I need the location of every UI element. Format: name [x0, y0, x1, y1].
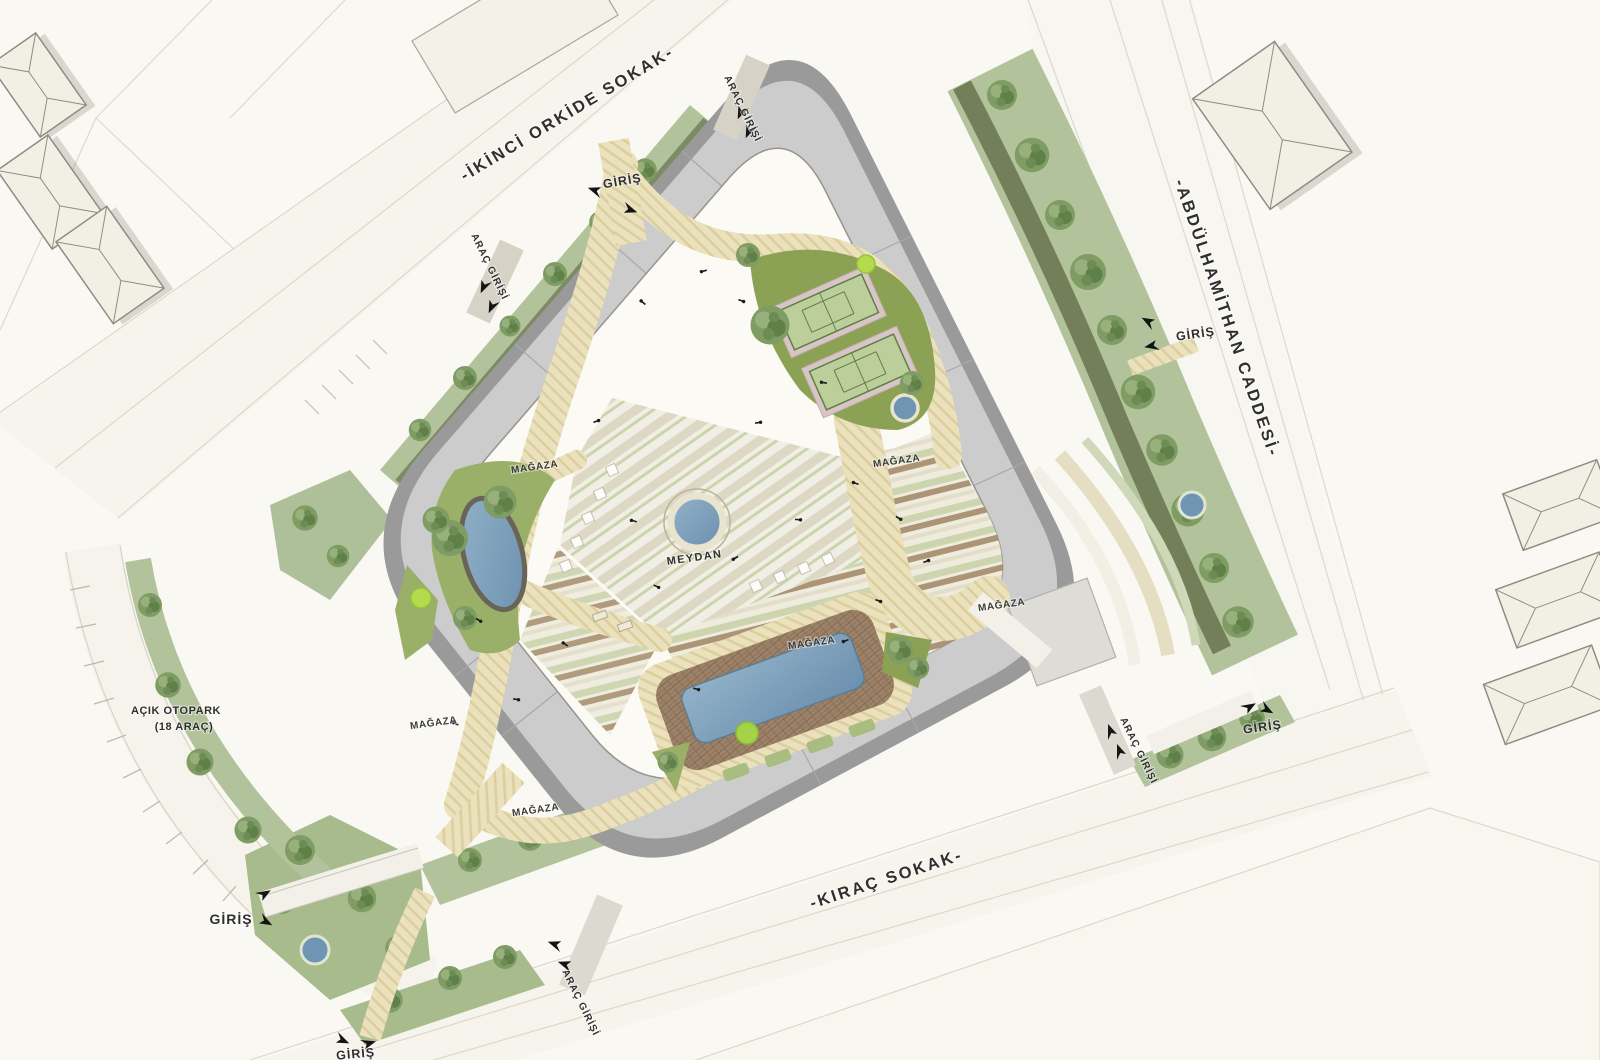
- round-pool: [892, 395, 918, 421]
- pond: [301, 936, 329, 964]
- entrance-label-bottom-left: GİRİŞ: [209, 911, 252, 927]
- pond: [1179, 492, 1205, 518]
- lime-lawn-circle: [411, 588, 431, 608]
- central-pool: [671, 496, 723, 548]
- open-parking-label-line1: AÇIK OTOPARK: [131, 705, 221, 717]
- lime-lawn-circle: [736, 722, 758, 744]
- site-plan-canvas: -İKİNCİ ORKİDE SOKAK- -ABDÜLHAMİTHAN CAD…: [0, 0, 1600, 1060]
- central-pool-group: [664, 489, 730, 555]
- site-plan: -İKİNCİ ORKİDE SOKAK- -ABDÜLHAMİTHAN CAD…: [0, 0, 1600, 1060]
- lime-lawn-circle: [857, 255, 875, 273]
- open-parking-label-line2: (18 ARAÇ): [155, 721, 214, 733]
